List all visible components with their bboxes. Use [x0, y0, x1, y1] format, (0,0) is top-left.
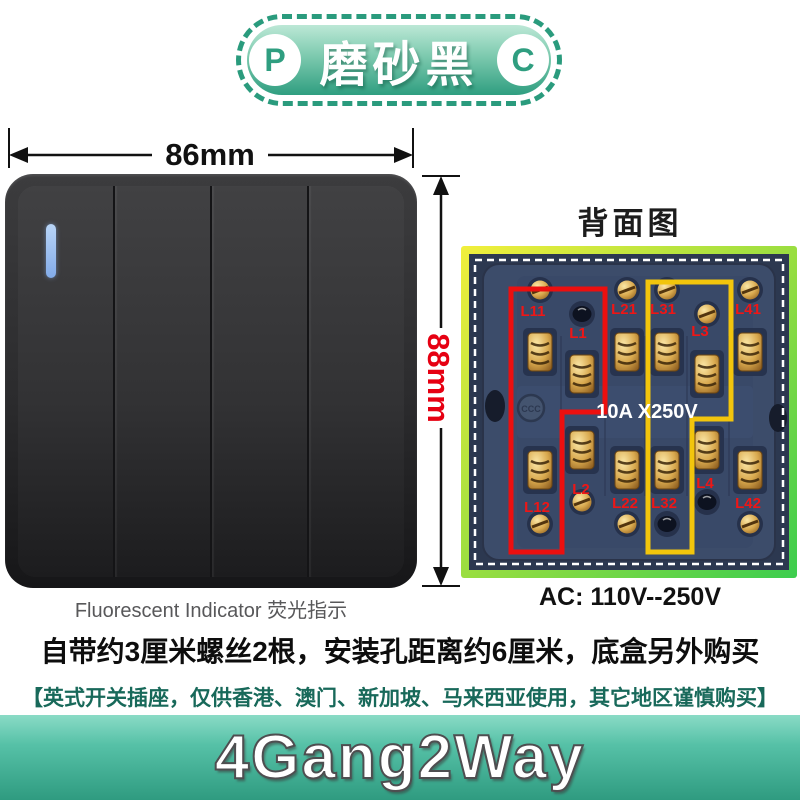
- color-name-label: 磨砂黑: [319, 25, 478, 95]
- rating-label: 10A X250V: [596, 401, 698, 423]
- fluorescent-indicator: [46, 224, 56, 278]
- svg-text:CCC: CCC: [521, 404, 541, 414]
- indicator-caption-zh: 荧光指示: [267, 600, 347, 622]
- product-spec-image: { "badge": { "left_letter": "P", "right_…: [0, 0, 800, 800]
- terminal-label: L41: [735, 301, 761, 318]
- terminal-label: L21: [611, 301, 637, 318]
- rocker-switch-2: [113, 186, 210, 577]
- height-dimension-label: 88mm: [418, 333, 458, 423]
- badge-letter-c: C: [497, 34, 549, 86]
- switch-panel-face: [18, 186, 404, 577]
- mounting-hole-right: [769, 404, 787, 432]
- switch-panel-front: [5, 174, 417, 588]
- color-option-badge: 磨砂黑 P C: [236, 14, 562, 106]
- terminal-label: L3: [691, 323, 709, 340]
- terminal-label: L31: [650, 301, 676, 318]
- back-view-photo: CCC 10A X250V L11 L1 L21 L31 L3 L41 L12 …: [461, 246, 797, 578]
- terminal-label: L11: [520, 303, 545, 320]
- install-note: 自带约3厘米螺丝2根，安装孔距离约6厘米，底盒另外购买: [0, 630, 800, 670]
- terminal-label: L22: [612, 495, 638, 512]
- terminal-label: L2: [572, 481, 590, 498]
- mounting-hole-left: [485, 390, 505, 422]
- width-dimension: 86mm: [0, 124, 424, 170]
- terminal-label: L4: [696, 475, 714, 492]
- rocker-switch-3: [210, 186, 307, 577]
- terminal-label: L42: [735, 495, 761, 512]
- rocker-switch-4: [307, 186, 404, 577]
- arrow-down-icon: [433, 567, 449, 586]
- ccc-certification-icon: CCC: [518, 395, 544, 421]
- terminal-label: L1: [569, 325, 587, 342]
- terminal-label: L12: [524, 499, 550, 516]
- width-dimension-label: 86mm: [165, 137, 255, 170]
- back-view-title: 背面图: [462, 198, 798, 243]
- terminal-label: L32: [651, 495, 677, 512]
- region-note: 【英式开关插座，仅供香港、澳门、新加坡、马来西亚使用，其它地区谨慎购买】: [0, 682, 800, 712]
- indicator-caption-en: Fluorescent Indicator: [75, 600, 262, 622]
- arrow-up-icon: [433, 176, 449, 195]
- indicator-caption: Fluorescent Indicator 荧光指示: [5, 594, 417, 623]
- product-type-banner: 4Gang2Way: [0, 715, 800, 800]
- arrow-right-icon: [394, 147, 413, 163]
- badge-letter-p: P: [249, 34, 301, 86]
- arrow-left-icon: [9, 147, 28, 163]
- rocker-switch-1: [18, 186, 113, 577]
- product-type-title: 4Gang2Way: [215, 722, 586, 793]
- voltage-range-label: AC: 110V--250V: [462, 583, 798, 612]
